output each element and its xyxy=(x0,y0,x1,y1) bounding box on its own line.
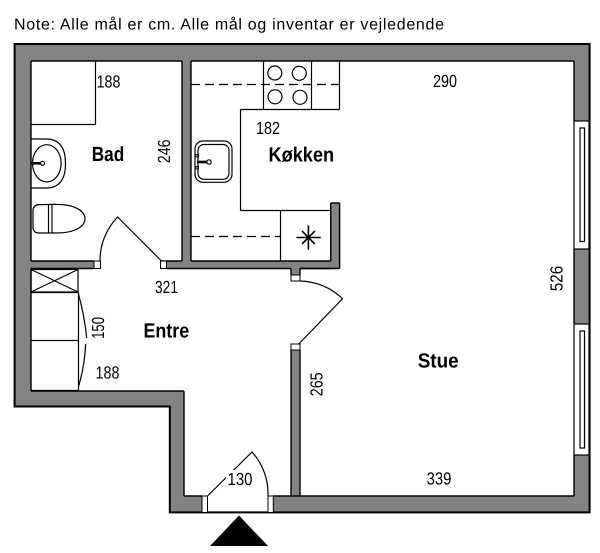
svg-text:Køkken: Køkken xyxy=(269,144,335,167)
svg-text:188: 188 xyxy=(97,71,121,91)
svg-text:321: 321 xyxy=(155,277,178,297)
svg-text:Bad: Bad xyxy=(92,143,125,166)
svg-text:130: 130 xyxy=(228,469,253,489)
svg-text:526: 526 xyxy=(546,266,566,291)
svg-text:182: 182 xyxy=(256,118,280,138)
svg-text:188: 188 xyxy=(96,363,120,383)
svg-text:339: 339 xyxy=(427,469,452,489)
svg-text:Stue: Stue xyxy=(418,350,459,373)
svg-text:Entre: Entre xyxy=(143,320,189,343)
svg-text:246: 246 xyxy=(154,139,174,163)
svg-text:Note: Alle mål er cm. Alle mål: Note: Alle mål er cm. Alle mål og invent… xyxy=(14,17,444,34)
svg-text:150: 150 xyxy=(88,317,108,339)
svg-text:290: 290 xyxy=(433,71,457,91)
svg-text:265: 265 xyxy=(306,372,326,396)
